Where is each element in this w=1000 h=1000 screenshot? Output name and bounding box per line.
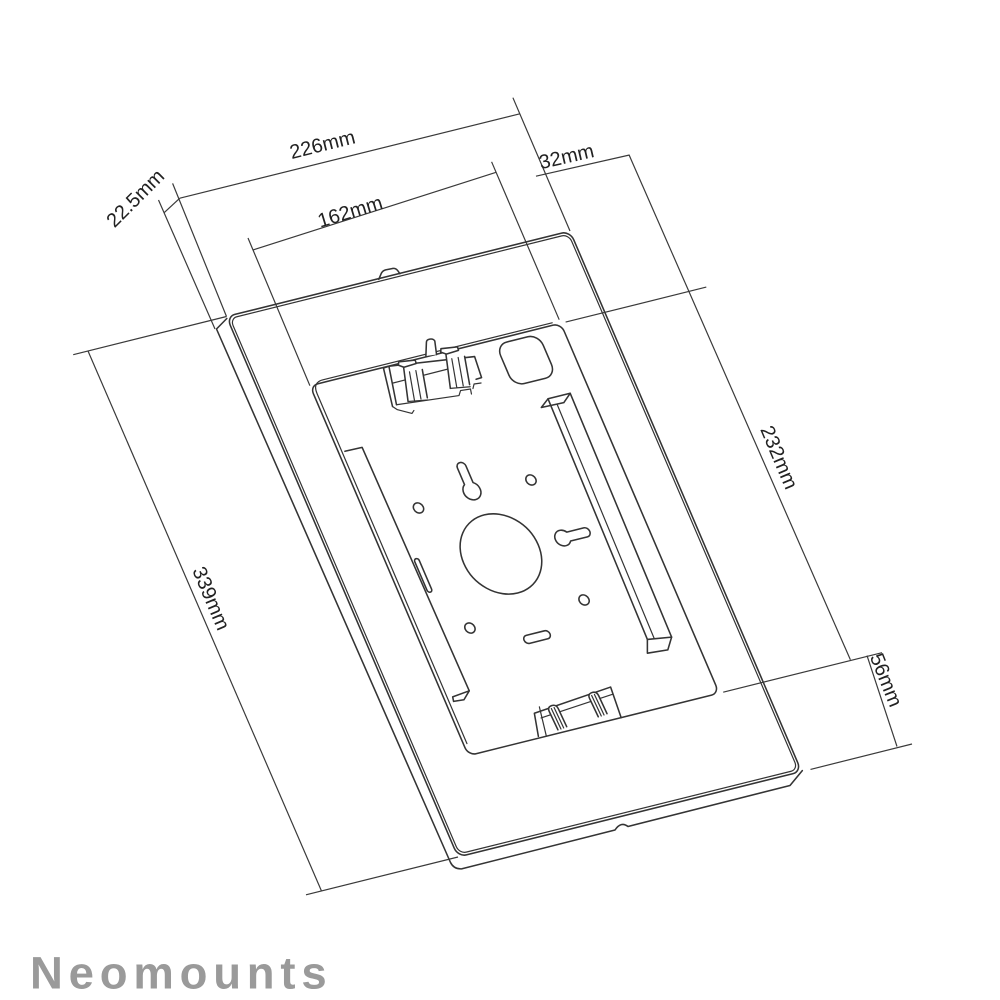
- svg-text:Neomounts: Neomounts: [30, 948, 332, 999]
